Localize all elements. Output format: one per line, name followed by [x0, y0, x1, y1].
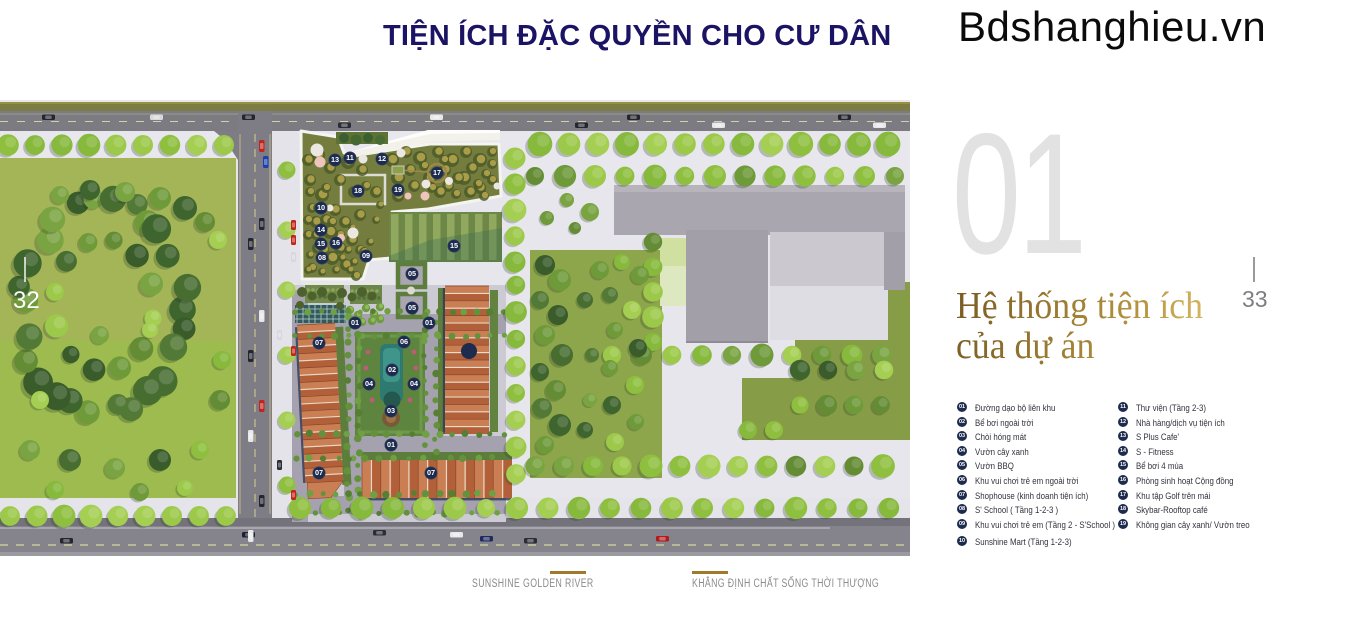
svg-text:06: 06	[400, 337, 408, 346]
svg-text:05: 05	[408, 303, 416, 312]
svg-text:01: 01	[387, 440, 395, 449]
svg-text:08: 08	[318, 253, 326, 262]
svg-text:04: 04	[365, 379, 374, 388]
svg-text:01: 01	[351, 318, 359, 327]
svg-text:15: 15	[317, 239, 325, 248]
svg-text:05: 05	[408, 269, 416, 278]
svg-text:19: 19	[394, 185, 402, 194]
svg-text:09: 09	[362, 251, 370, 260]
svg-text:15: 15	[450, 241, 458, 250]
svg-text:02: 02	[388, 365, 396, 374]
svg-text:07: 07	[427, 468, 435, 477]
svg-text:16: 16	[332, 238, 340, 247]
svg-text:14: 14	[317, 225, 326, 234]
svg-text:12: 12	[378, 154, 386, 163]
svg-text:11: 11	[346, 153, 354, 162]
svg-text:32: 32	[13, 287, 40, 314]
svg-text:01: 01	[425, 318, 433, 327]
svg-text:07: 07	[315, 338, 323, 347]
svg-text:18: 18	[354, 186, 362, 195]
svg-text:03: 03	[387, 406, 395, 415]
svg-text:13: 13	[331, 155, 339, 164]
svg-text:10: 10	[317, 203, 325, 212]
svg-text:17: 17	[433, 168, 441, 177]
svg-text:04: 04	[410, 379, 419, 388]
svg-text:07: 07	[315, 468, 323, 477]
